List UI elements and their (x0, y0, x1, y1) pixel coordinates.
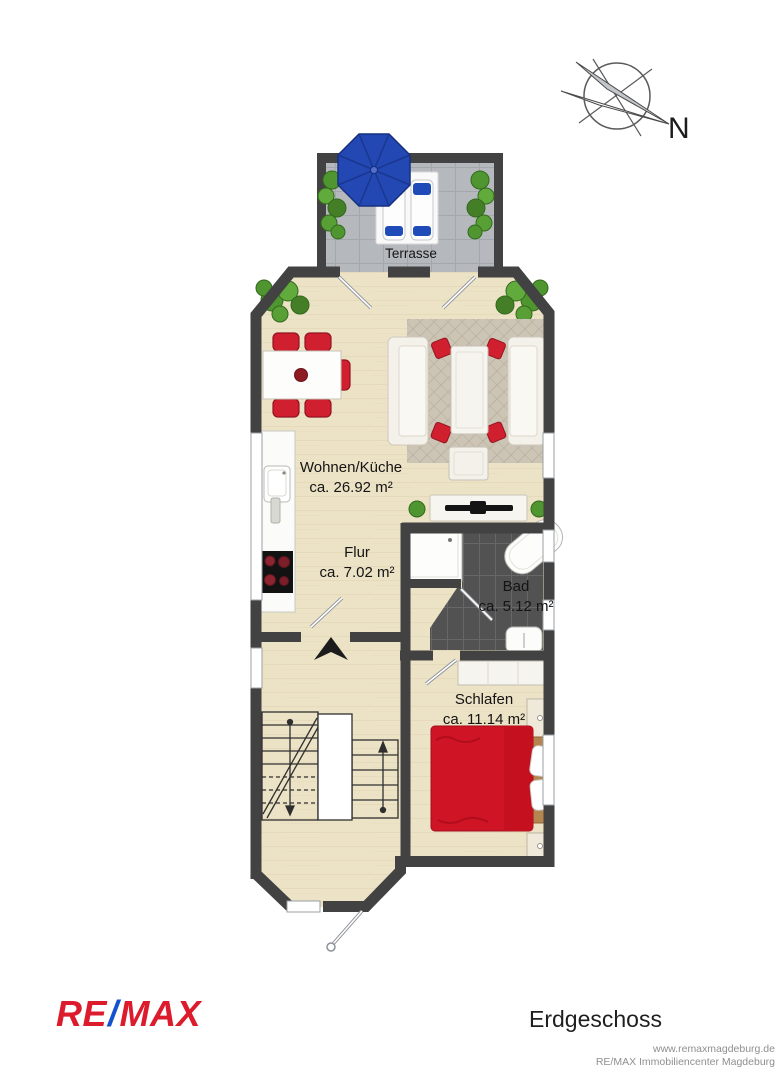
terrace-label: Terrasse (341, 246, 481, 261)
window-kitchen (251, 433, 262, 600)
logo-max: MAX (120, 993, 202, 1034)
room-name: Schlafen (404, 690, 564, 710)
room-label-hall: Flur ca. 7.02 m² (277, 543, 437, 583)
window-bedroom (543, 735, 554, 805)
window-stairhall (251, 648, 262, 688)
floorplan-drawing (0, 0, 783, 1080)
toilet-icon (506, 627, 542, 653)
compass-rose-icon (561, 59, 669, 136)
coffee-table (451, 346, 488, 434)
room-label-bath: Bad ca. 5.12 m² (456, 577, 576, 617)
logo-slash: / (107, 993, 120, 1034)
window-bath-1 (543, 530, 554, 562)
room-area: ca. 26.92 m² (271, 478, 431, 498)
window-living (543, 433, 554, 478)
wardrobe (458, 661, 548, 685)
room-area: ca. 11.14 m² (404, 710, 564, 730)
ottoman (449, 447, 488, 480)
room-name: Flur (277, 543, 437, 563)
room-label-bedroom: Schlafen ca. 11.14 m² (404, 690, 564, 730)
footer-credits: www.remaxmagdeburg.de RE/MAX Immobilienc… (596, 1043, 775, 1069)
footer-website: www.remaxmagdeburg.de (596, 1043, 775, 1056)
umbrella-icon (338, 134, 410, 206)
floorplan-page: Terrasse Wohnen/Küche ca. 26.92 m² Flur … (0, 0, 783, 1080)
room-area: ca. 7.02 m² (277, 563, 437, 583)
room-name: Wohnen/Küche (271, 458, 431, 478)
remax-logo: RE/MAX (56, 993, 201, 1035)
room-area: ca. 5.12 m² (456, 597, 576, 617)
window-entrance-side (287, 901, 320, 912)
room-name: Bad (456, 577, 576, 597)
logo-re: RE (56, 993, 107, 1034)
footer-company: RE/MAX Immobiliencenter Magdeburg (596, 1056, 775, 1069)
floor-title: Erdgeschoss (529, 1006, 662, 1033)
north-label: N (668, 112, 690, 146)
sideboard-tv (409, 495, 547, 521)
bed (431, 726, 553, 831)
room-label-living: Wohnen/Küche ca. 26.92 m² (271, 458, 431, 498)
